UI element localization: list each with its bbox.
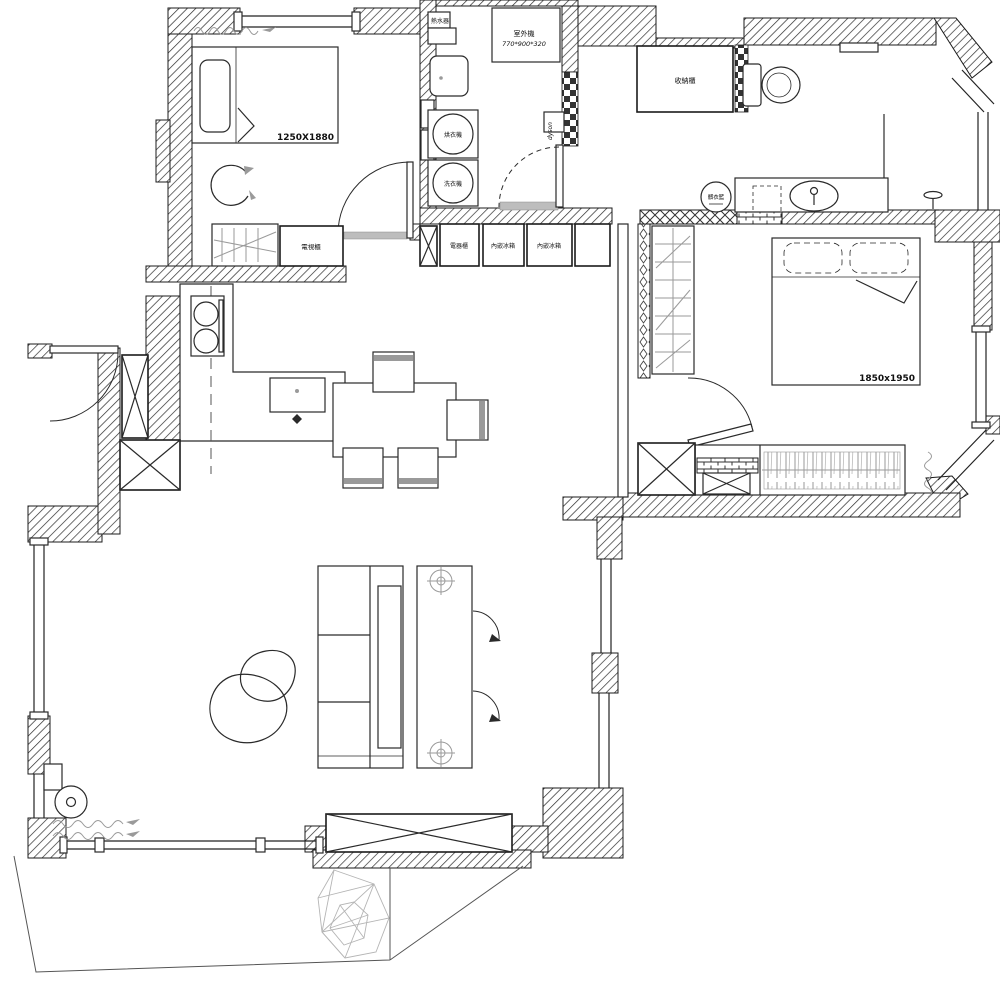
lounge-chair-icon bbox=[210, 650, 295, 742]
shower-head-icon bbox=[924, 192, 942, 211]
laundry-room: 熱水器 室外機 770*900*320 烘衣機 洗衣機 dyson bbox=[428, 8, 564, 206]
planter-xbox bbox=[326, 814, 512, 852]
curtain-icon bbox=[925, 452, 932, 497]
window-bedroom2-right bbox=[972, 326, 990, 428]
landscape-rock-icon bbox=[318, 870, 389, 958]
laundry-sink bbox=[430, 56, 468, 96]
outdoor-unit-label: 室外機 bbox=[514, 29, 535, 38]
hall-cabinet-end bbox=[575, 224, 610, 266]
wall bbox=[156, 120, 170, 182]
wall bbox=[578, 6, 656, 46]
floor-plan-page: 1250X1880 電視櫃 熱水器 室外機 770*900*320 bbox=[0, 0, 1000, 992]
tv-console bbox=[417, 566, 472, 768]
fridge1-label: 內嵌冰箱 bbox=[491, 242, 515, 250]
bed-single: 1250X1880 bbox=[192, 47, 338, 143]
window-living-right-lower bbox=[599, 693, 609, 788]
insulated-wall bbox=[638, 224, 650, 378]
wall bbox=[98, 348, 120, 534]
window-bedroom1-top bbox=[234, 12, 360, 31]
washer-label: 洗衣機 bbox=[444, 180, 462, 188]
window-living-left-upper bbox=[30, 538, 48, 719]
column-xbox bbox=[638, 443, 695, 495]
wall bbox=[620, 493, 960, 517]
window-living-right-upper bbox=[601, 559, 611, 653]
wall bbox=[146, 296, 180, 440]
balcony bbox=[14, 814, 523, 972]
wall bbox=[592, 653, 618, 693]
dryer: 烘衣機 bbox=[428, 110, 478, 158]
wall bbox=[28, 506, 102, 542]
wall bbox=[543, 788, 623, 858]
storage-cabinet-label: 收納櫃 bbox=[675, 76, 696, 85]
wall bbox=[168, 8, 240, 34]
walls bbox=[28, 0, 1000, 868]
floor-lamp-icon bbox=[55, 786, 87, 818]
stove-icon bbox=[191, 296, 224, 356]
wall bbox=[744, 18, 936, 45]
water-heater: 熱水器 bbox=[428, 12, 456, 44]
sofa bbox=[318, 566, 403, 768]
column-xbox bbox=[120, 440, 180, 490]
dining-table bbox=[333, 383, 456, 457]
partition-wall bbox=[618, 224, 628, 497]
wall bbox=[420, 208, 612, 224]
wall bbox=[28, 344, 52, 358]
living-room bbox=[53, 566, 501, 840]
laundry-basket: 髒衣籃 bbox=[701, 182, 731, 212]
hall-xbox bbox=[420, 226, 437, 266]
dining-chair bbox=[398, 448, 438, 488]
appliance-cabinet-label: 電器櫃 bbox=[450, 242, 468, 250]
wall bbox=[974, 242, 992, 330]
dining-chair bbox=[373, 352, 414, 392]
bevel-wall bbox=[934, 18, 992, 78]
bedroom-2: 1850x1950 bbox=[638, 226, 932, 497]
swing-arrow-icon bbox=[473, 611, 501, 642]
wall bbox=[597, 517, 622, 559]
water-heater-label: 熱水器 bbox=[431, 17, 449, 25]
bedroom1-door bbox=[338, 162, 413, 239]
low-wall bbox=[640, 210, 737, 224]
wall bbox=[354, 8, 426, 34]
bed2-size-label: 1850x1950 bbox=[859, 374, 915, 384]
built-in-fridge-2: 內嵌冰箱 bbox=[527, 224, 572, 266]
toilet-icon bbox=[743, 64, 800, 106]
laundry-basket-label: 髒衣籃 bbox=[708, 193, 725, 201]
balcony-outline bbox=[14, 856, 523, 972]
dyson-label: dyson bbox=[547, 122, 554, 140]
outdoor-ac-unit: 室外機 770*900*320 bbox=[492, 8, 560, 62]
dining-area bbox=[333, 352, 488, 488]
laundry-door bbox=[499, 145, 563, 210]
bed-double: 1850x1950 bbox=[772, 238, 920, 385]
swivel-chair-icon bbox=[211, 165, 256, 205]
hall-cabinet-row: 電器櫃 內嵌冰箱 內嵌冰箱 bbox=[420, 224, 610, 266]
window-living-bottom bbox=[60, 837, 323, 853]
wardrobe-bedroom2 bbox=[652, 226, 694, 374]
wall bbox=[146, 266, 346, 282]
washer: 洗衣機 bbox=[428, 160, 478, 206]
swing-arrow-icon bbox=[473, 691, 501, 722]
curtain-arrow-icon bbox=[262, 27, 276, 32]
appliance-cabinet: 電器櫃 bbox=[440, 224, 479, 266]
wall bbox=[562, 6, 578, 72]
fridge2-label: 內嵌冰箱 bbox=[537, 242, 561, 250]
tv-cabinet-bedroom1: 電視櫃 bbox=[280, 226, 343, 266]
dryer-label: 烘衣機 bbox=[444, 131, 462, 139]
wall bbox=[935, 210, 1000, 242]
faucet-icon bbox=[811, 188, 818, 195]
wall bbox=[512, 826, 548, 852]
bathroom-area: 收納櫃 髒衣籃 bbox=[637, 46, 942, 212]
wall bbox=[436, 0, 578, 6]
bed1-size-label: 1250X1880 bbox=[277, 133, 334, 143]
dining-chair bbox=[343, 448, 383, 488]
floor-plan-svg: 1250X1880 電視櫃 熱水器 室外機 770*900*320 bbox=[0, 0, 1000, 992]
bench-cabinet-row bbox=[695, 445, 905, 495]
wall-niche bbox=[840, 43, 878, 52]
bedroom2-door bbox=[688, 378, 753, 447]
wall bbox=[168, 8, 192, 272]
dining-chair bbox=[447, 400, 488, 440]
shoe-cabinet-xbox bbox=[122, 355, 148, 438]
tv-cabinet-label: 電視櫃 bbox=[301, 242, 321, 251]
bench-xbox bbox=[703, 473, 750, 494]
vanity-counter bbox=[735, 178, 888, 212]
wardrobe-bedroom1 bbox=[212, 224, 278, 266]
bedroom-1: 1250X1880 電視櫃 bbox=[192, 27, 343, 266]
built-in-fridge-1: 內嵌冰箱 bbox=[483, 224, 524, 266]
outdoor-unit-size-label: 770*900*320 bbox=[502, 40, 546, 48]
duct-wall bbox=[562, 72, 578, 146]
bench-brick bbox=[697, 458, 758, 473]
dyson-mount: dyson bbox=[544, 112, 564, 140]
window-bathroom-right bbox=[978, 112, 988, 210]
storage-cabinet: 收納櫃 bbox=[637, 46, 733, 112]
